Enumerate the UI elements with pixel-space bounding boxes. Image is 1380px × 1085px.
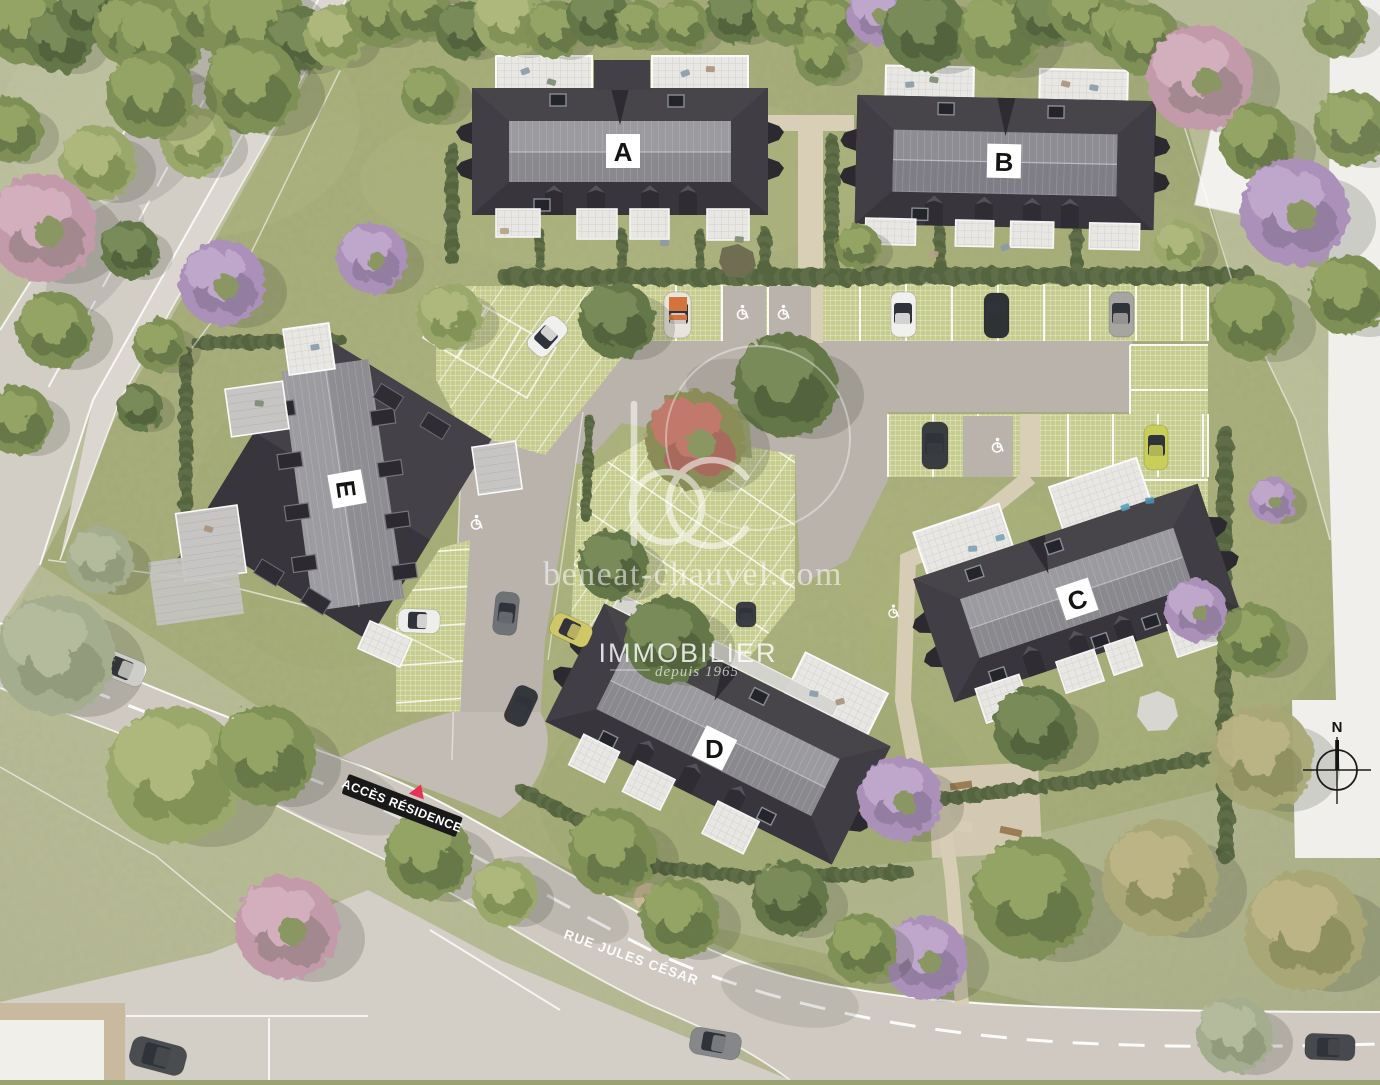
svg-text:B: B bbox=[994, 147, 1013, 177]
svg-text:A: A bbox=[614, 137, 633, 167]
svg-text:depuis 1965: depuis 1965 bbox=[655, 664, 739, 680]
svg-text:N: N bbox=[1332, 719, 1343, 736]
svg-text:beneat-chauvel.com: beneat-chauvel.com bbox=[543, 556, 843, 593]
svg-text:D: D bbox=[705, 734, 724, 764]
